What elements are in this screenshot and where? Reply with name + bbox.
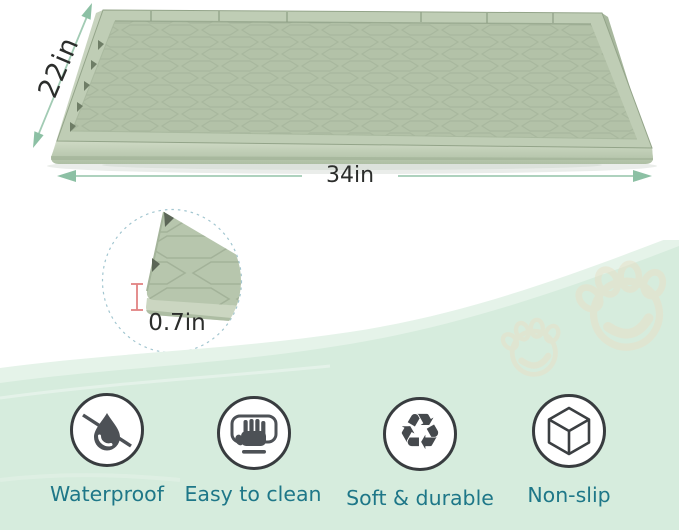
paw-print-icon xyxy=(570,255,679,356)
paw-print-watermarks xyxy=(470,245,679,385)
feature-waterproof-badge xyxy=(70,393,144,467)
paw-print-icon xyxy=(498,315,568,379)
feature-label-easy-clean: Easy to clean xyxy=(163,482,343,506)
cube-icon xyxy=(540,402,598,460)
wiping-hand-icon xyxy=(224,403,284,463)
feature-non-slip-badge xyxy=(532,394,606,468)
feature-label-non-slip: Non-slip xyxy=(479,483,659,507)
feature-soft-durable-badge: ♻ xyxy=(383,397,457,471)
recycle-icon: ♻ xyxy=(398,407,443,457)
feature-easy-clean-badge xyxy=(217,396,291,470)
product-image: 22in 34in xyxy=(0,0,679,530)
mat-hex-texture xyxy=(72,21,637,139)
no-water-drop-icon xyxy=(77,400,137,460)
width-dimension-label: 34in xyxy=(300,163,400,188)
